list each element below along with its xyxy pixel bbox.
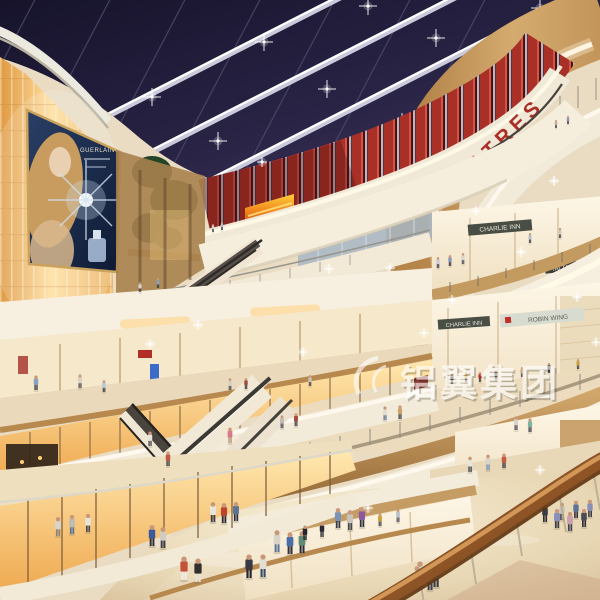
scene-canvas: THEATRES GUERLAIN xyxy=(0,0,600,600)
billboard-model-face xyxy=(49,147,71,177)
sparkle-light xyxy=(549,176,559,186)
small-red-sign xyxy=(138,350,152,358)
robin-wing-logo-mark xyxy=(505,317,512,324)
mall-atrium-rendering: THEATRES GUERLAIN xyxy=(0,0,600,600)
billboard-brand-text: GUERLAIN xyxy=(80,148,115,154)
billboard-perfume-bottle xyxy=(88,238,106,262)
watermark-text: 铝翼集团 xyxy=(400,362,560,405)
